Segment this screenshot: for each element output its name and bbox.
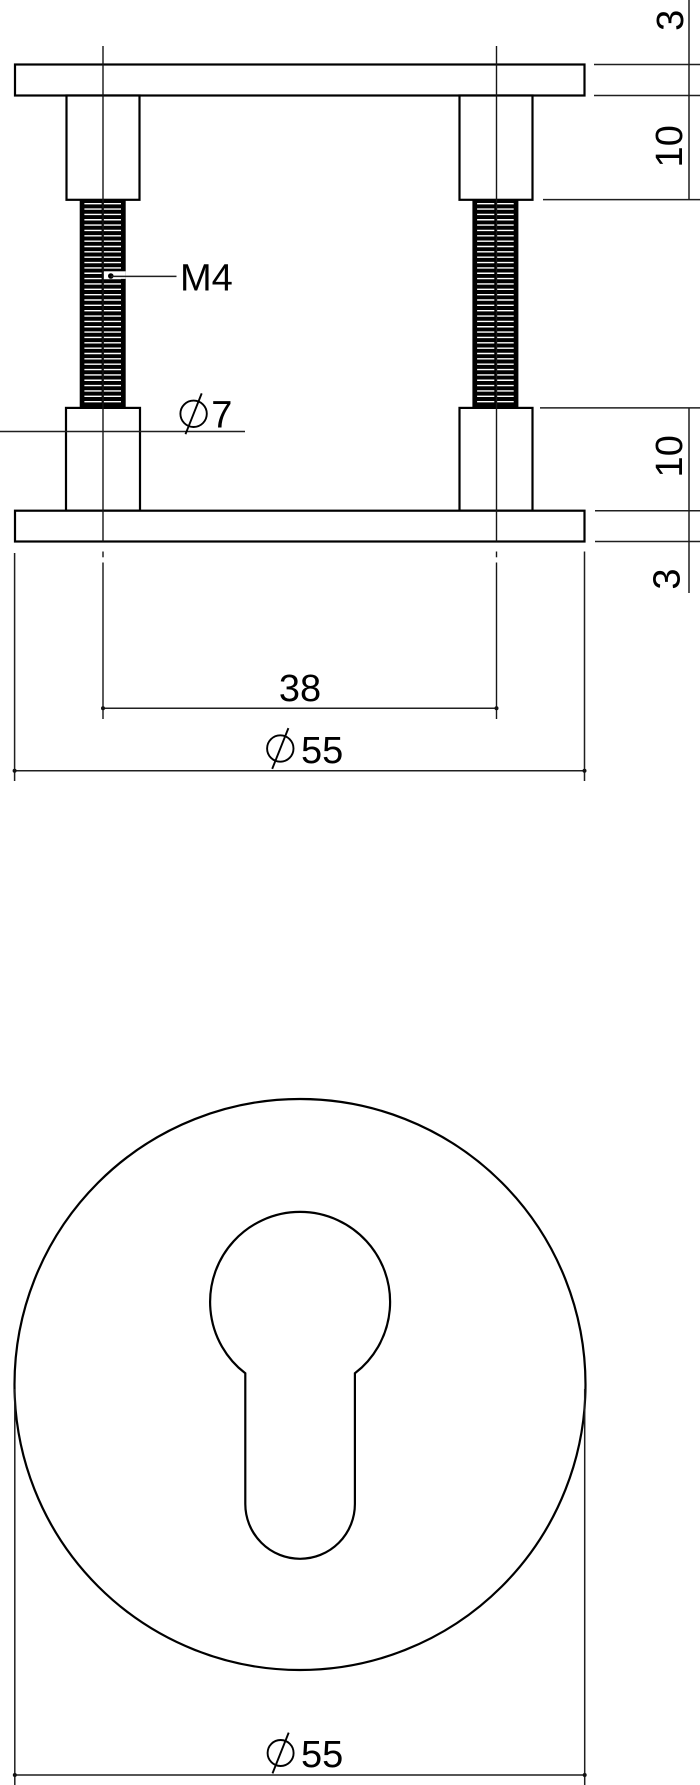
svg-text:10: 10 xyxy=(649,435,691,477)
svg-text:55: 55 xyxy=(301,730,343,772)
svg-text:3: 3 xyxy=(650,10,692,31)
svg-text:M4: M4 xyxy=(180,258,233,300)
svg-text:38: 38 xyxy=(279,668,321,710)
svg-text:3: 3 xyxy=(647,568,689,589)
svg-text:7: 7 xyxy=(211,395,232,437)
svg-text:55: 55 xyxy=(301,1734,343,1776)
svg-text:10: 10 xyxy=(649,125,691,167)
